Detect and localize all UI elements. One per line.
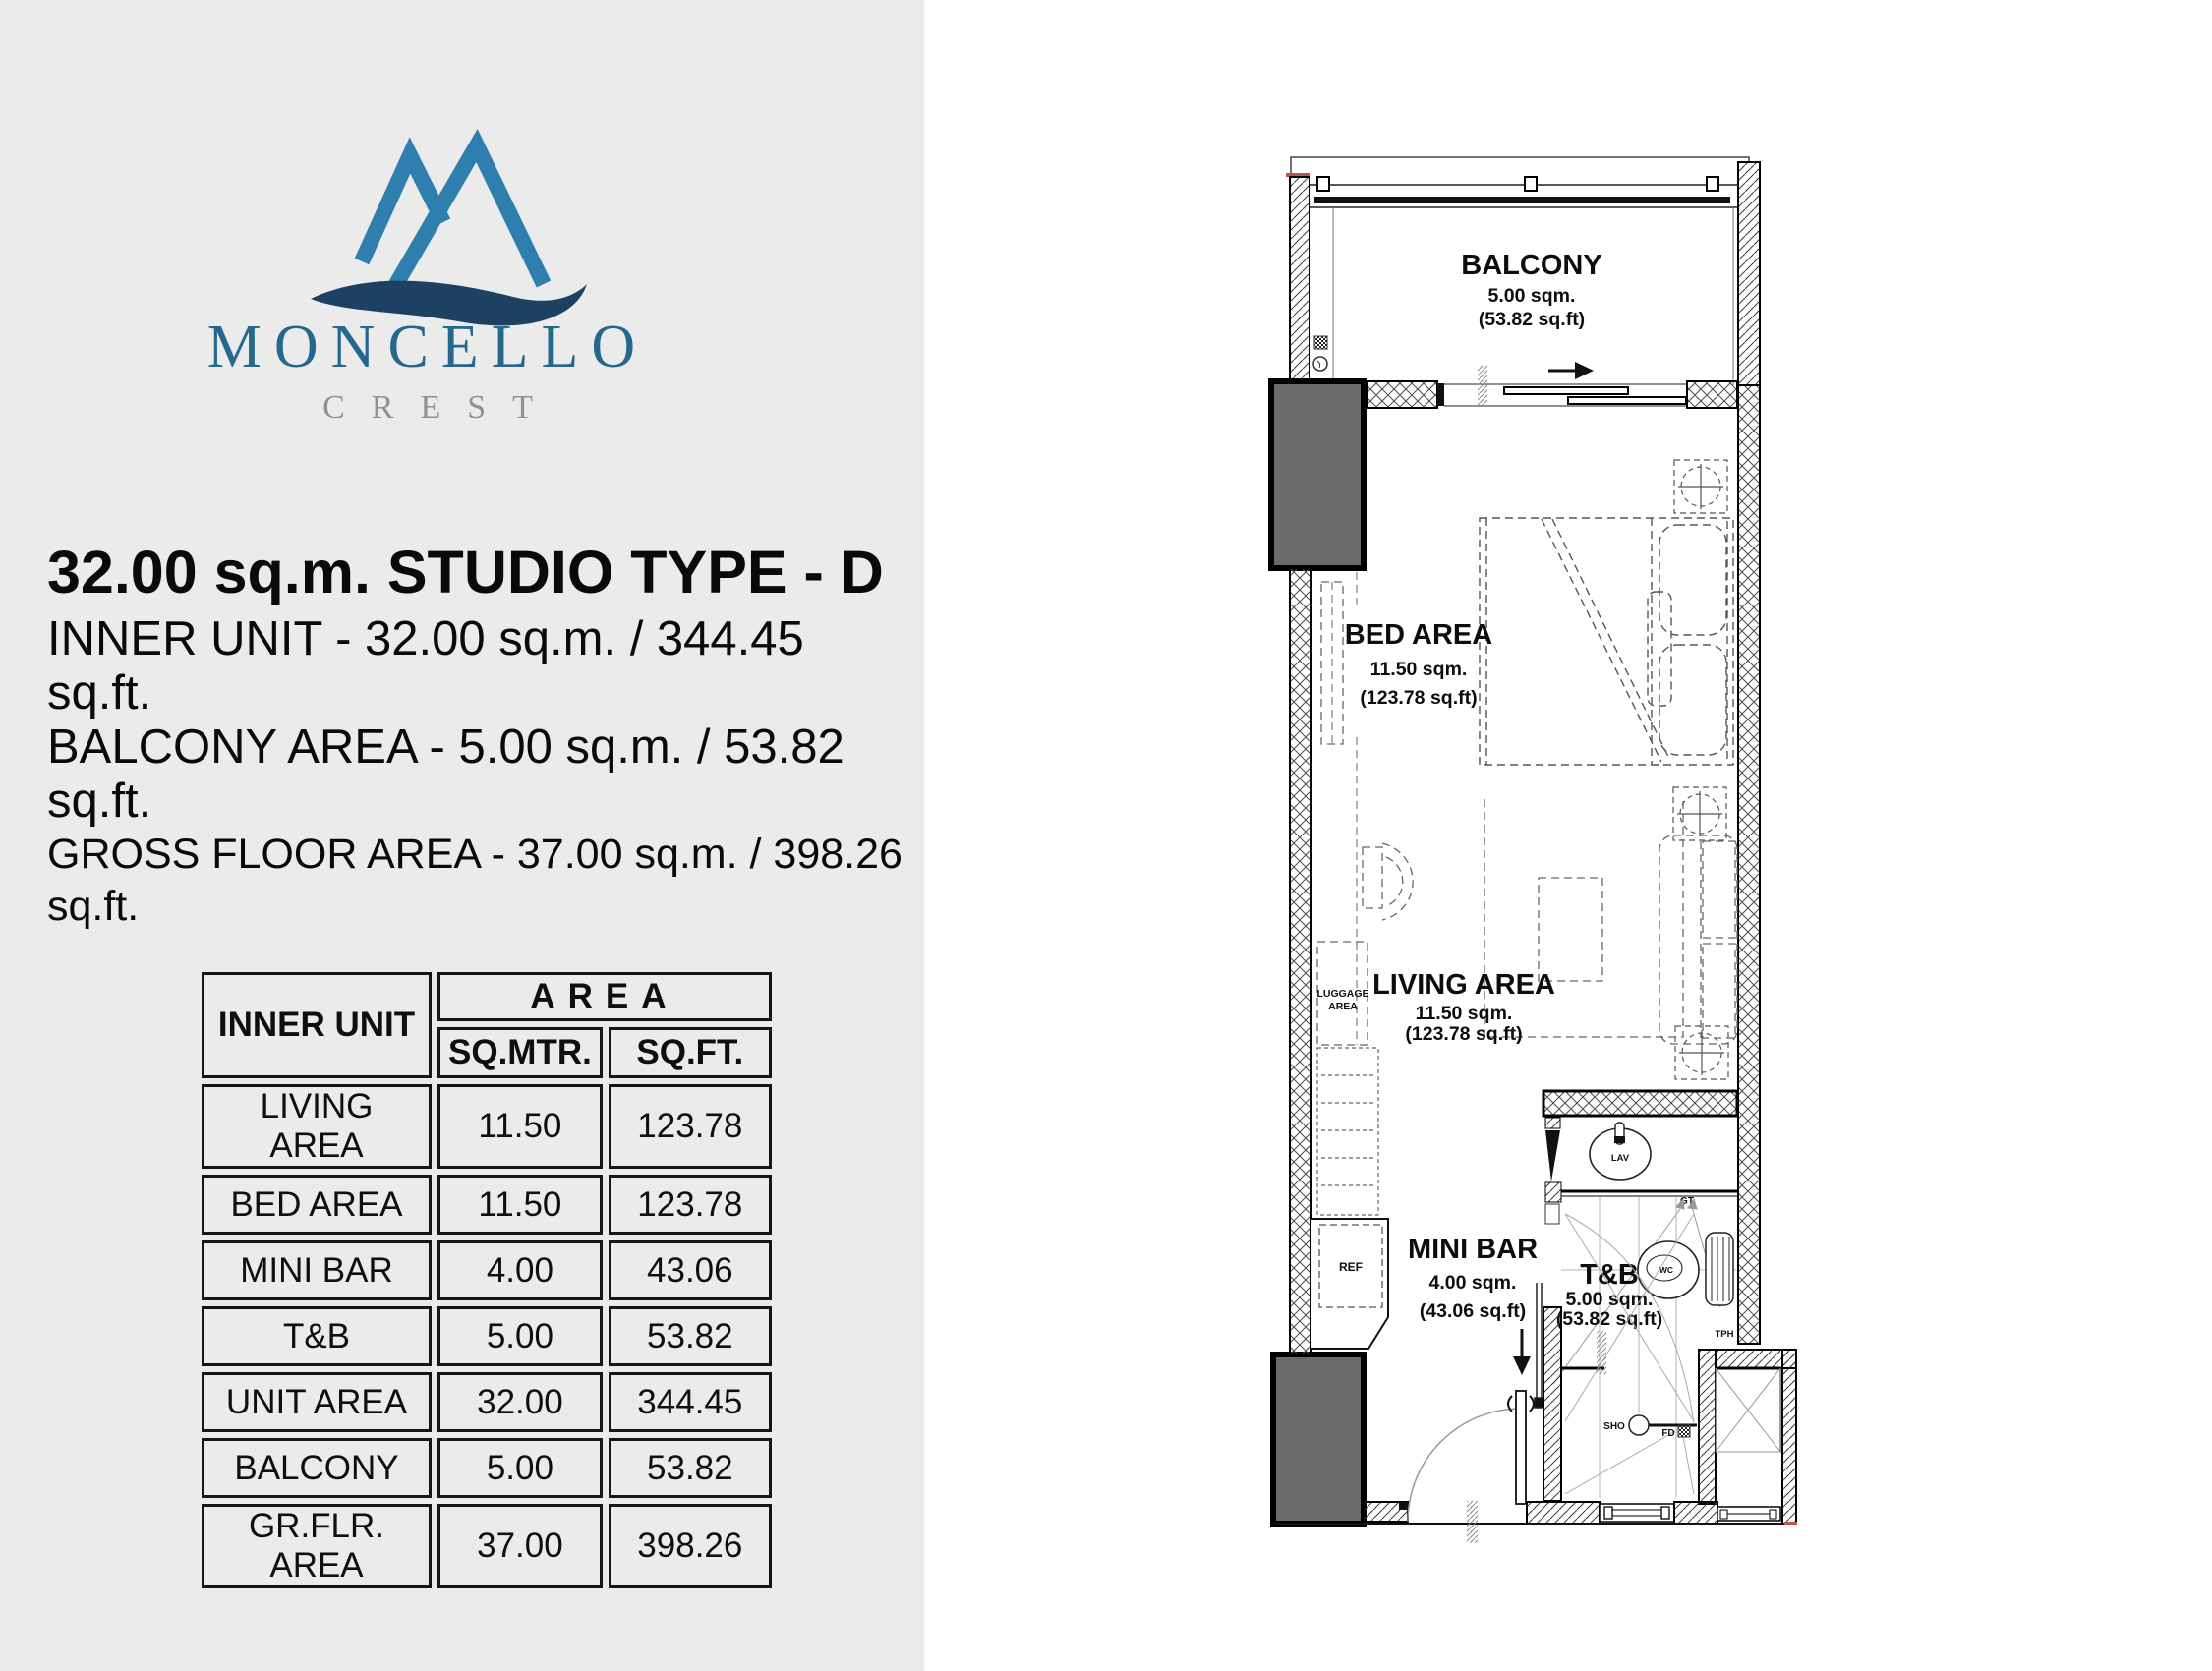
bed-area-label: BED AREA 11.50 sqm. (123.78 sq.ft) xyxy=(1345,619,1492,709)
row-sqm: 11.50 xyxy=(437,1084,603,1169)
balcony-wall-right xyxy=(1738,162,1760,385)
down-arrow-icon xyxy=(1513,1329,1531,1375)
pillow xyxy=(1659,645,1726,755)
row-sqm: 5.00 xyxy=(437,1438,603,1498)
tb-door-jamb xyxy=(1545,1118,1561,1224)
living-area-room xyxy=(1317,799,1737,1045)
balcony-railing xyxy=(1310,177,1738,385)
partition-wall xyxy=(1535,1283,1543,1408)
living-area-boundary xyxy=(1484,799,1683,1037)
balcony-wall-left xyxy=(1290,177,1310,381)
shaft-wall-outer xyxy=(1782,1350,1796,1524)
tb-wall-top xyxy=(1543,1091,1737,1116)
table-row: GR.FLR. AREA 37.00 398.26 xyxy=(202,1504,772,1588)
lavatory: LAV xyxy=(1561,1123,1737,1196)
minibar-counter xyxy=(1311,1219,1388,1349)
table xyxy=(1539,878,1602,981)
table-header-row: INNER UNIT AREA xyxy=(202,972,772,1021)
towel-rack xyxy=(1706,1233,1733,1305)
balcony-room-label: BALCONY 5.00 sqm. (53.82 sq.ft) xyxy=(1461,250,1601,330)
table-row: BALCONY 5.00 53.82 xyxy=(202,1438,772,1498)
minibar-name: MINI BAR xyxy=(1408,1234,1538,1265)
row-label: UNIT AREA xyxy=(202,1372,432,1432)
row-sqft: 123.78 xyxy=(609,1084,772,1169)
bed xyxy=(1480,518,1733,765)
row-sqm: 11.50 xyxy=(437,1175,603,1235)
row-sqft: 123.78 xyxy=(609,1175,772,1235)
tb-sqft: (53.82 sq.ft) xyxy=(1556,1308,1662,1330)
revision-mark xyxy=(1784,1522,1797,1525)
svg-text:AREA: AREA xyxy=(1328,1001,1358,1012)
minibar-label: MINI BAR 4.00 sqm. (43.06 sq.ft) xyxy=(1408,1234,1538,1322)
living-name: LIVING AREA xyxy=(1372,969,1555,1001)
balcony-name: BALCONY xyxy=(1461,250,1601,281)
table-row: BED AREA 11.50 123.78 xyxy=(202,1175,772,1235)
row-label: MINI BAR xyxy=(202,1240,432,1300)
door-leaf xyxy=(1516,1391,1526,1504)
wall-fixture-icons xyxy=(1313,336,1327,371)
structural-column-top xyxy=(1271,381,1364,568)
sofa xyxy=(1659,835,1737,1044)
row-sqft: 43.06 xyxy=(609,1240,772,1300)
fd-label: FD xyxy=(1661,1428,1674,1439)
luggage-area-label: LUGGAGE AREA xyxy=(1316,988,1368,1012)
svg-text:LUGGAGE: LUGGAGE xyxy=(1316,988,1368,1000)
shower-wall-left xyxy=(1543,1307,1561,1501)
bed-sqft: (123.78 sq.ft) xyxy=(1360,687,1477,709)
wall-section-marker xyxy=(1467,1501,1478,1543)
row-sqft: 344.45 xyxy=(609,1372,772,1432)
bed-sqm: 11.50 sqm. xyxy=(1370,659,1468,680)
row-sqft: 398.26 xyxy=(609,1504,772,1588)
gross-floor-area-line: GROSS FLOOR AREA - 37.00 sq.m. / 398.26 … xyxy=(47,829,912,935)
unit-title: 32.00 sq.m. STUDIO TYPE - D xyxy=(47,543,912,603)
moncello-logo-icon xyxy=(295,124,590,332)
entry-door xyxy=(1364,1391,1534,1522)
living-sqm: 11.50 sqm. xyxy=(1416,1003,1513,1024)
inner-unit-header: INNER UNIT xyxy=(202,972,432,1078)
row-sqm: 37.00 xyxy=(437,1504,603,1588)
unit-wall-right xyxy=(1738,385,1760,1344)
row-label: LIVING AREA xyxy=(202,1084,432,1169)
tb-sqm: 5.00 sqm. xyxy=(1566,1289,1654,1310)
door-swing-arc xyxy=(1408,1409,1521,1522)
floorplan-drawing: BALCONY 5.00 sqm. (53.82 sq.ft) xyxy=(1258,147,1848,1573)
minibar-sqft: (43.06 sq.ft) xyxy=(1420,1300,1526,1322)
direction-arrow-icon xyxy=(1548,362,1594,379)
row-label: GR.FLR. AREA xyxy=(202,1504,432,1588)
living-sqft: (123.78 sq.ft) xyxy=(1405,1023,1522,1045)
table-row: UNIT AREA 32.00 344.45 xyxy=(202,1372,772,1432)
bed-name: BED AREA xyxy=(1345,619,1492,651)
table-row: MINI BAR 4.00 43.06 xyxy=(202,1240,772,1300)
table-row: LIVING AREA 11.50 123.78 xyxy=(202,1084,772,1169)
shelving-unit xyxy=(1317,1048,1378,1215)
balcony-sqft: (53.82 sq.ft) xyxy=(1479,309,1585,330)
sqmtr-header: SQ.MTR. xyxy=(437,1027,603,1078)
sho-label: SHO xyxy=(1603,1421,1625,1432)
ceiling-light-icon xyxy=(1674,460,1727,513)
pillow xyxy=(1659,525,1726,635)
structural-column-bottom xyxy=(1273,1354,1364,1524)
wall-section-marker xyxy=(1478,366,1487,405)
shaft-interior xyxy=(1716,1368,1780,1452)
logo-tagline: CREST xyxy=(118,389,737,427)
minibar-sqm: 4.00 sqm. xyxy=(1429,1272,1517,1294)
inner-unit-line: INNER UNIT - 32.00 sq.m. / 344.45 sq.ft. xyxy=(47,612,912,720)
table-row: T&B 5.00 53.82 xyxy=(202,1306,772,1366)
row-sqm: 5.00 xyxy=(437,1306,603,1366)
row-label: BED AREA xyxy=(202,1175,432,1235)
shaft-wall-inner xyxy=(1699,1350,1716,1504)
bed-area-room xyxy=(1321,518,1733,1045)
logo-wordmark: MONCELLO xyxy=(118,313,737,382)
desk-chair xyxy=(1363,843,1413,920)
sqft-header: SQ.FT. xyxy=(609,1027,772,1078)
ref-label: REF xyxy=(1339,1260,1363,1274)
ceiling-light-icon xyxy=(1673,787,1726,840)
balcony-area-line: BALCONY AREA - 5.00 sq.m. / 53.82 sq.ft. xyxy=(47,720,912,829)
unit-wall-left xyxy=(1290,568,1311,1354)
door-handle-icon xyxy=(1530,1396,1534,1412)
tph-label: TPH xyxy=(1716,1329,1734,1340)
row-sqm: 4.00 xyxy=(437,1240,603,1300)
row-sqm: 32.00 xyxy=(437,1372,603,1432)
balcony-sqm: 5.00 sqm. xyxy=(1488,285,1576,307)
row-sqft: 53.82 xyxy=(609,1438,772,1498)
left-info-panel: MONCELLO CREST 32.00 sq.m. STUDIO TYPE -… xyxy=(0,0,924,1671)
row-sqft: 53.82 xyxy=(609,1306,772,1366)
row-label: BALCONY xyxy=(202,1438,432,1498)
row-label: T&B xyxy=(202,1306,432,1366)
area-table: INNER UNIT AREA SQ.MTR. SQ.FT. LIVING AR… xyxy=(196,966,778,1594)
unit-headline: 32.00 sq.m. STUDIO TYPE - D INNER UNIT -… xyxy=(47,543,912,934)
balcony-roof-outline xyxy=(1286,157,1749,177)
lav-label: LAV xyxy=(1611,1153,1630,1164)
mountain-peak-left-icon xyxy=(362,155,443,261)
living-area-label: LIVING AREA 11.50 sqm. (123.78 sq.ft) xyxy=(1372,969,1555,1045)
floorplan-flyer-page: { "page": { "left_panel_bg": "#ebebeb", … xyxy=(0,0,2212,1671)
area-group-header: AREA xyxy=(437,972,772,1021)
